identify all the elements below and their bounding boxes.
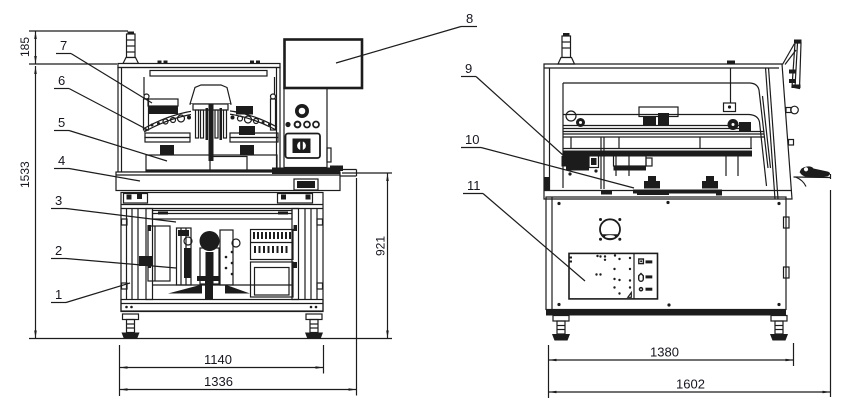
svg-text:5: 5 xyxy=(58,115,65,130)
svg-text:185: 185 xyxy=(18,37,32,57)
svg-text:3: 3 xyxy=(55,193,62,208)
svg-text:9: 9 xyxy=(465,61,472,76)
svg-text:8: 8 xyxy=(466,11,473,26)
svg-text:11: 11 xyxy=(467,178,481,193)
svg-text:1336: 1336 xyxy=(204,374,233,389)
svg-text:10: 10 xyxy=(465,132,479,147)
svg-text:1602: 1602 xyxy=(676,377,705,392)
svg-text:7: 7 xyxy=(60,38,67,53)
svg-text:921: 921 xyxy=(374,236,388,256)
svg-text:1140: 1140 xyxy=(204,352,232,367)
svg-text:1380: 1380 xyxy=(650,345,679,360)
svg-text:4: 4 xyxy=(58,153,65,168)
svg-text:2: 2 xyxy=(55,243,62,258)
svg-text:1: 1 xyxy=(55,287,62,302)
svg-text:1533: 1533 xyxy=(18,161,32,188)
svg-text:6: 6 xyxy=(58,73,65,88)
